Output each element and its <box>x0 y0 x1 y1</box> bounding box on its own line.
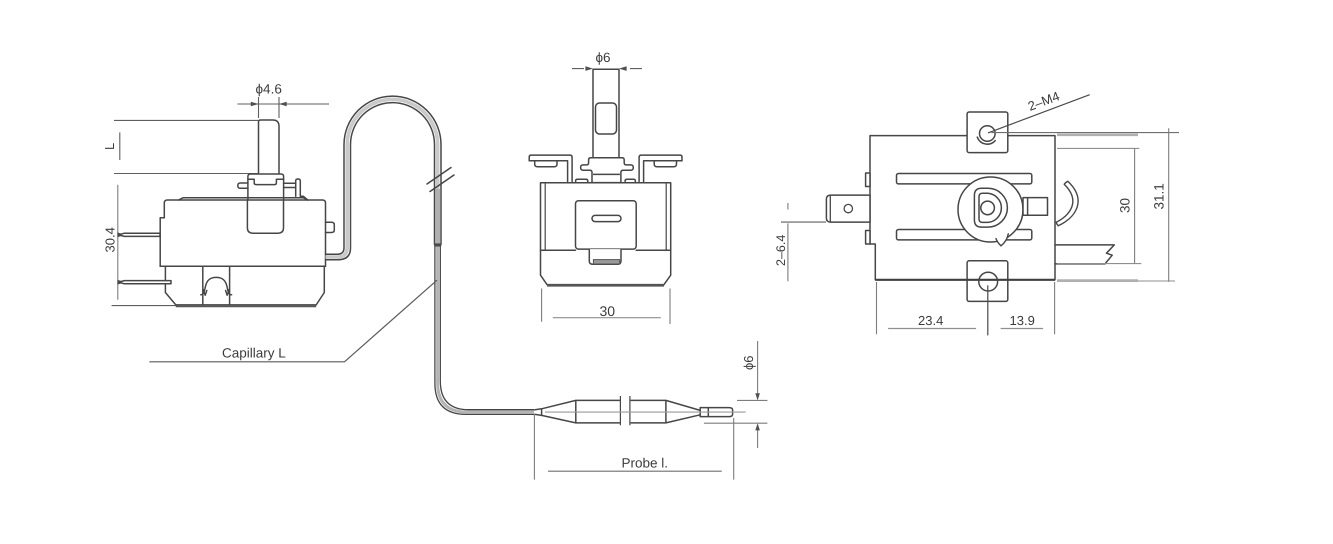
svg-text:L: L <box>102 143 117 150</box>
svg-text:30: 30 <box>1118 198 1133 213</box>
svg-text:Probe l.: Probe l. <box>622 456 669 471</box>
svg-text:31.1: 31.1 <box>1152 183 1167 209</box>
svg-text:Capillary L: Capillary L <box>222 346 286 361</box>
svg-text:ϕ6: ϕ6 <box>596 50 611 65</box>
svg-text:23.4: 23.4 <box>918 313 943 328</box>
svg-text:ϕ6: ϕ6 <box>741 355 756 370</box>
svg-text:30.4: 30.4 <box>103 227 118 252</box>
svg-text:ϕ4.6: ϕ4.6 <box>256 82 282 97</box>
svg-text:13.9: 13.9 <box>1010 313 1035 328</box>
svg-text:2–M4: 2–M4 <box>1026 88 1062 113</box>
svg-text:30: 30 <box>600 303 616 319</box>
svg-text:2–6.4: 2–6.4 <box>774 235 788 266</box>
